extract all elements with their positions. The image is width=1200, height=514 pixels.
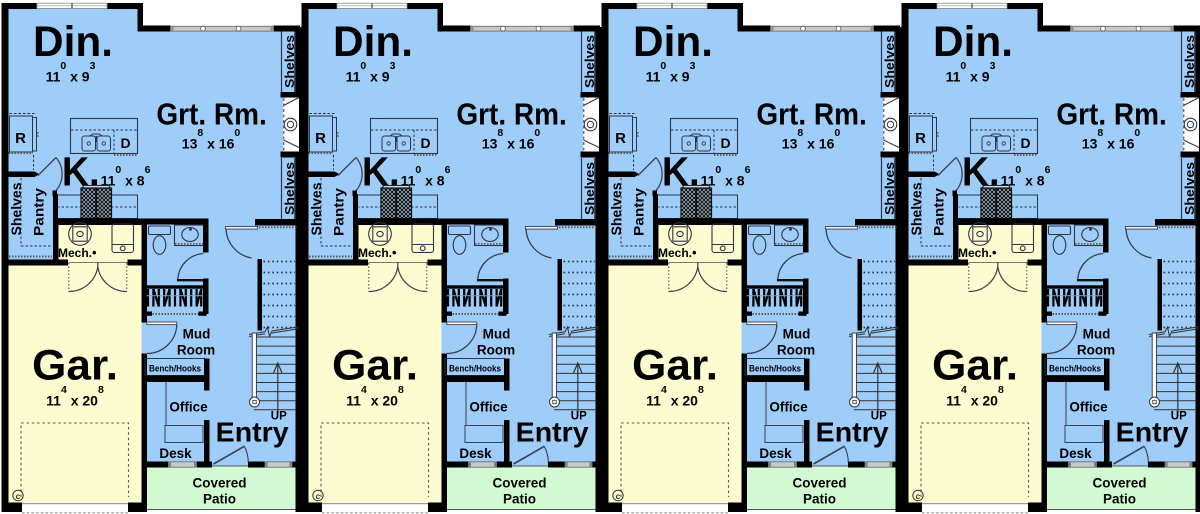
svg-text:D: D [1020,135,1030,151]
svg-text:UP: UP [1171,411,1187,423]
svg-text:Mech.•: Mech.• [58,245,97,260]
svg-text:Mud: Mud [1083,327,1111,342]
svg-text:Shelves: Shelves [882,162,897,215]
svg-text:Mech.•: Mech.• [358,245,397,260]
svg-text:Mud: Mud [783,327,811,342]
svg-text:Shelves: Shelves [308,182,324,235]
svg-text:R: R [915,130,926,147]
svg-text:Gar.: Gar. [32,342,118,390]
svg-text:Shelves: Shelves [582,162,597,215]
svg-text:D: D [420,135,430,151]
svg-text:Din.: Din. [633,18,713,66]
svg-text:Mech.•: Mech.• [658,245,697,260]
svg-text:Covered: Covered [192,476,246,491]
svg-text:Room: Room [1077,343,1115,358]
svg-text:Shelves: Shelves [282,162,297,215]
svg-text:Pantry: Pantry [931,188,947,236]
svg-text:Patio: Patio [803,492,836,507]
svg-text:Bench/Hooks: Bench/Hooks [1049,364,1101,375]
svg-text:Desk: Desk [759,446,792,461]
svg-text:Room: Room [777,343,815,358]
svg-text:Grt. Rm.: Grt. Rm. [456,97,566,132]
svg-text:D: D [720,135,730,151]
svg-text:Covered: Covered [492,476,546,491]
svg-text:Patio: Patio [203,492,236,507]
svg-text:Bench/Hooks: Bench/Hooks [749,364,801,375]
svg-text:Patio: Patio [1103,492,1136,507]
svg-text:Shelves: Shelves [1182,35,1197,88]
svg-text:Din.: Din. [33,18,113,66]
svg-text:Grt. Rm.: Grt. Rm. [156,97,267,132]
svg-text:Room: Room [177,343,215,358]
svg-text:Shelves: Shelves [908,182,924,235]
svg-text:Office: Office [169,400,208,415]
svg-text:Office: Office [469,400,508,415]
svg-text:D: D [120,135,130,151]
svg-text:c: c [616,491,621,501]
svg-text:Shelves: Shelves [608,182,624,235]
svg-text:Pantry: Pantry [31,188,47,236]
svg-text:Shelves: Shelves [882,35,897,88]
svg-text:Mud: Mud [483,327,511,342]
svg-text:Gar.: Gar. [632,342,718,390]
svg-text:Desk: Desk [459,446,492,461]
svg-text:Gar.: Gar. [332,342,418,390]
svg-text:Office: Office [769,400,808,415]
svg-text:Pantry: Pantry [631,188,647,236]
svg-text:c: c [316,491,321,501]
svg-text:Mud: Mud [183,327,211,342]
svg-text:Bench/Hooks: Bench/Hooks [149,364,201,375]
svg-text:UP: UP [871,411,887,423]
svg-text:Din.: Din. [933,18,1013,66]
svg-text:Shelves: Shelves [282,35,297,88]
svg-text:Pantry: Pantry [331,188,347,236]
svg-text:UP: UP [271,411,287,423]
svg-text:Shelves: Shelves [1182,162,1197,215]
svg-text:R: R [15,130,26,147]
svg-text:Bench/Hooks: Bench/Hooks [449,364,501,375]
svg-text:Grt. Rm.: Grt. Rm. [1056,97,1167,132]
svg-text:R: R [315,130,326,147]
svg-text:Mech.•: Mech.• [958,245,997,260]
svg-text:Office: Office [1069,400,1108,415]
svg-text:Grt. Rm.: Grt. Rm. [756,97,867,132]
svg-text:Patio: Patio [503,492,536,507]
svg-text:Covered: Covered [792,476,846,491]
svg-text:Gar.: Gar. [932,342,1018,390]
svg-text:R: R [615,130,626,147]
svg-text:c: c [16,491,21,501]
svg-text:Desk: Desk [159,446,192,461]
svg-text:Shelves: Shelves [8,182,24,235]
svg-text:Covered: Covered [1092,476,1146,491]
svg-text:Room: Room [477,343,515,358]
svg-text:Din.: Din. [333,18,413,66]
svg-text:Shelves: Shelves [582,35,597,88]
svg-text:UP: UP [571,411,587,423]
svg-text:Desk: Desk [1059,446,1092,461]
svg-text:c: c [916,491,921,501]
